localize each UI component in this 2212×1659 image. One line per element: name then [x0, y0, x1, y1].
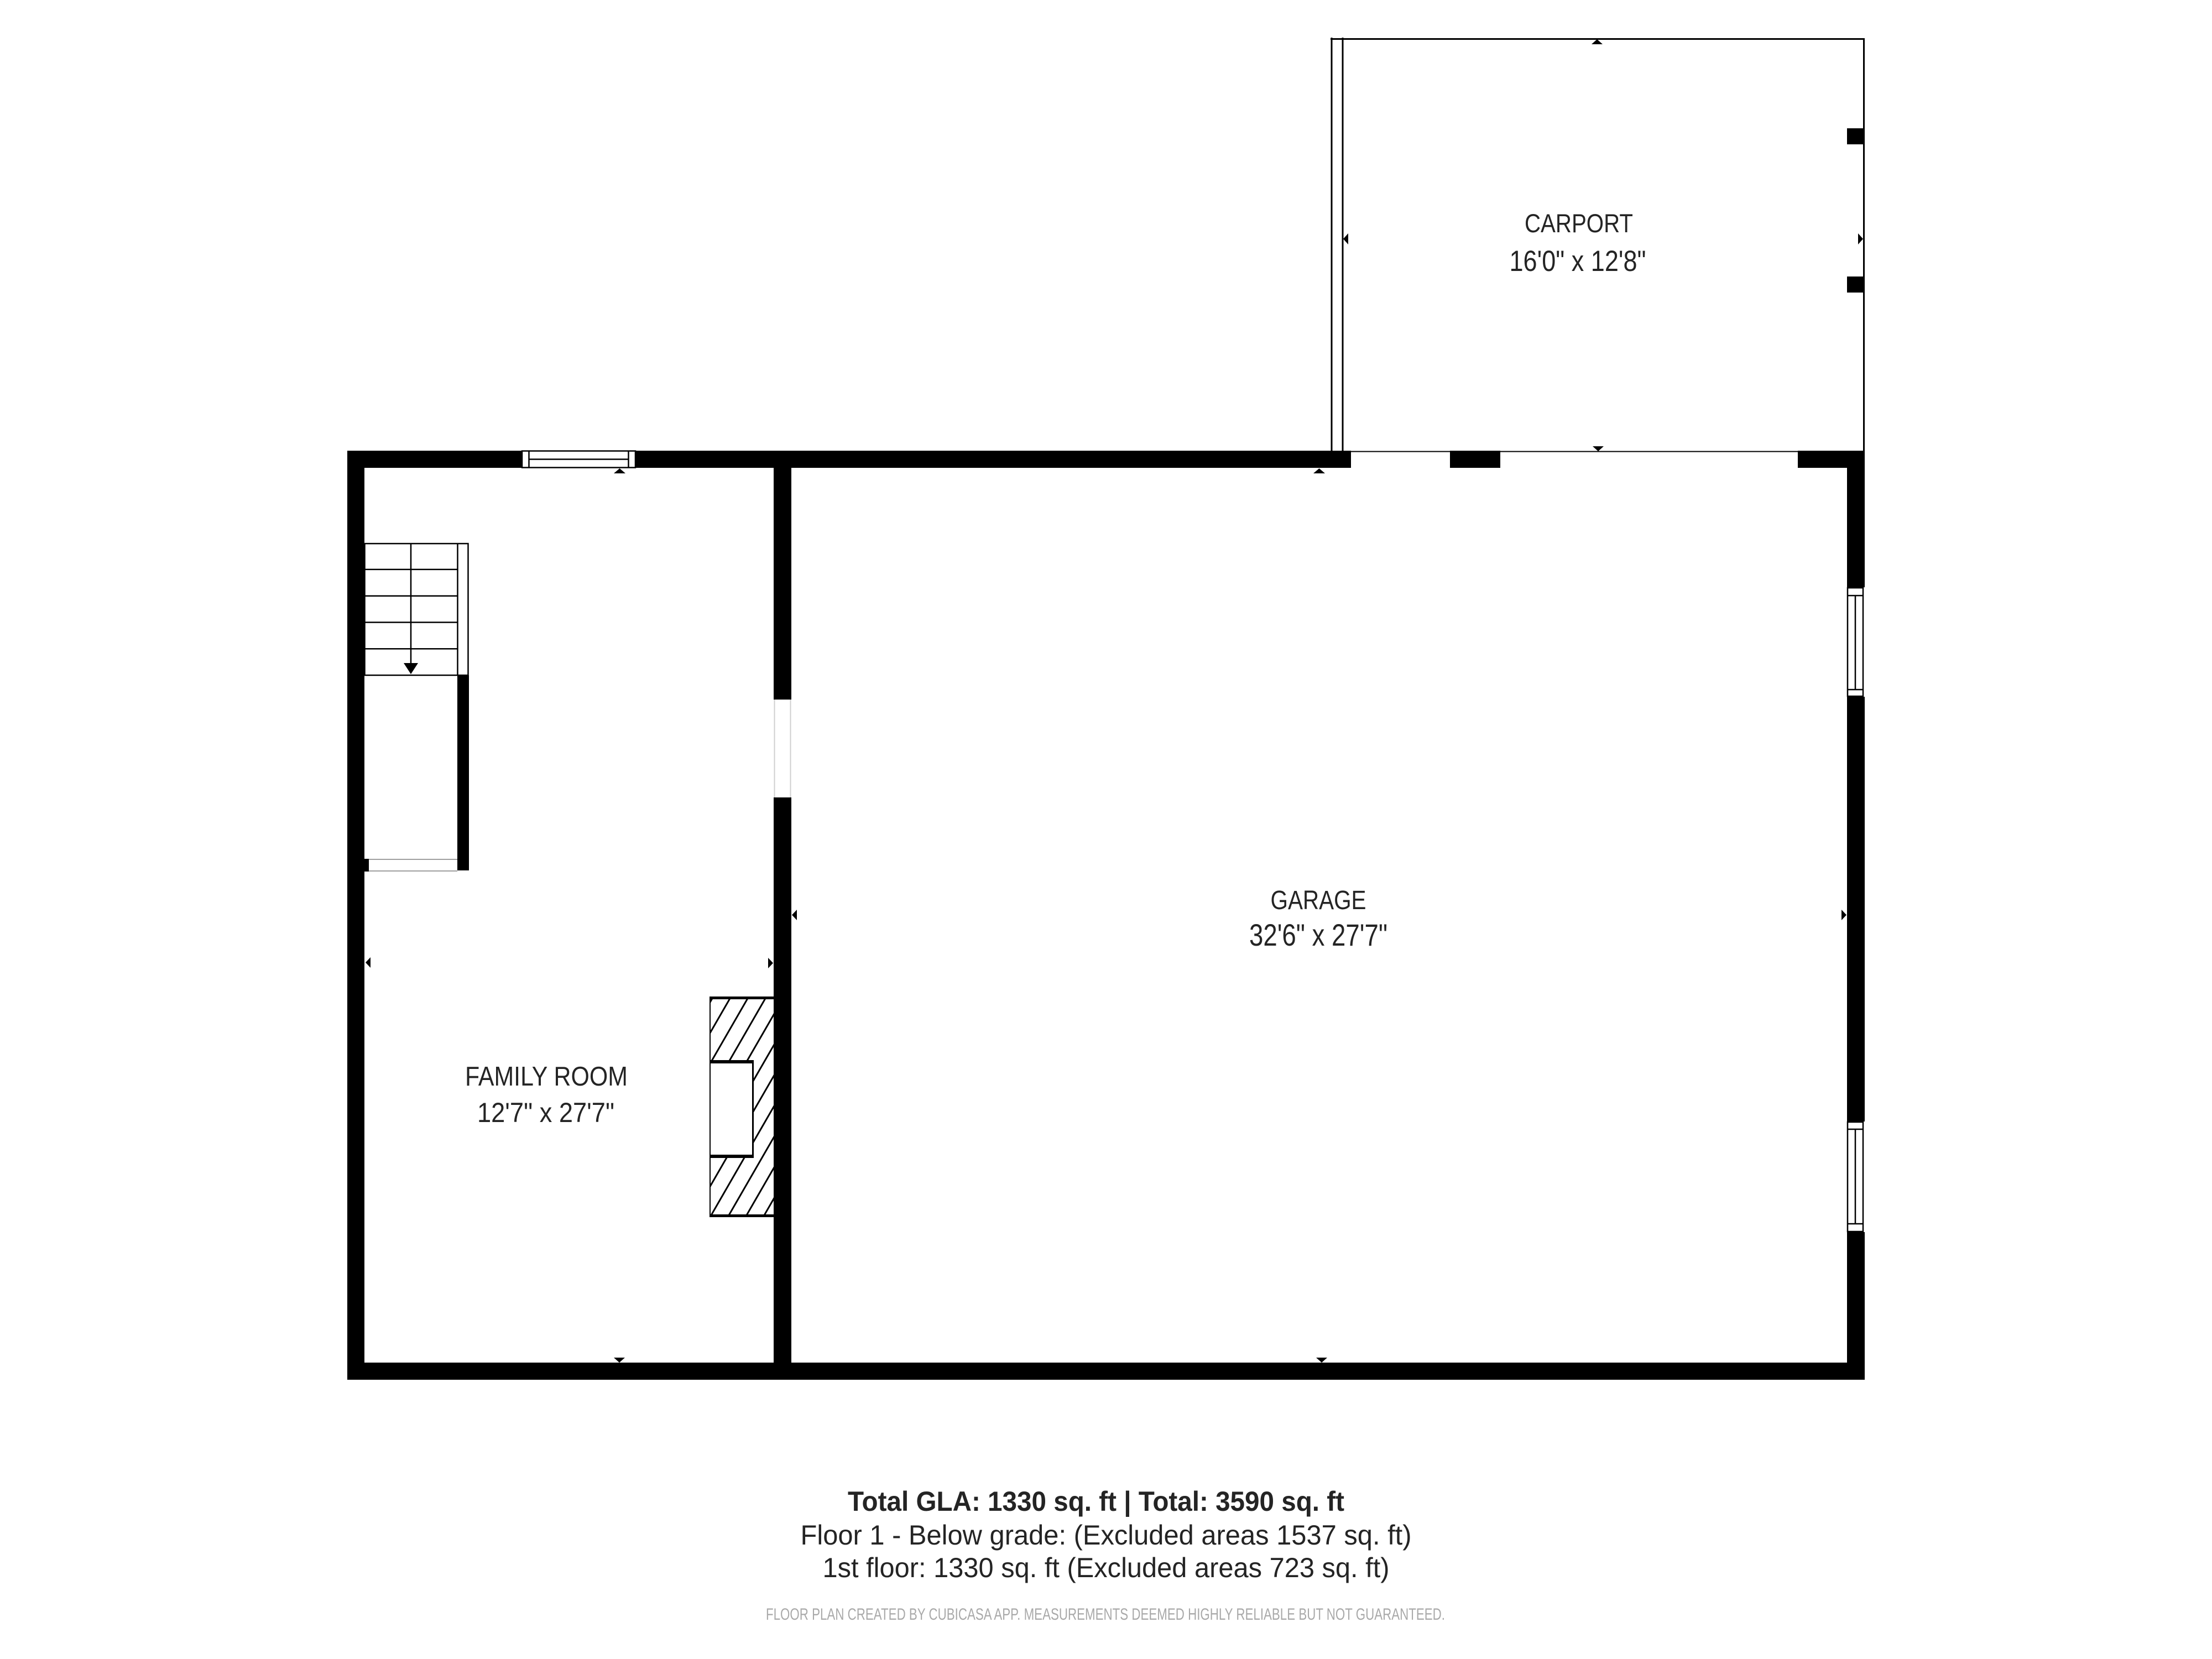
- svg-text:FAMILY ROOM: FAMILY ROOM: [465, 1062, 628, 1092]
- svg-text:FLOOR PLAN CREATED BY CUBICASA: FLOOR PLAN CREATED BY CUBICASA APP. MEAS…: [766, 1605, 1445, 1624]
- svg-text:Floor 1 - Below grade: (Exclud: Floor 1 - Below grade: (Excluded areas 1…: [801, 1520, 1412, 1551]
- svg-text:1st floor: 1330 sq. ft (Exclud: 1st floor: 1330 sq. ft (Excluded areas 7…: [823, 1552, 1390, 1583]
- svg-text:32'6" x 27'7": 32'6" x 27'7": [1249, 917, 1387, 952]
- svg-text:CARPORT: CARPORT: [1525, 208, 1633, 238]
- svg-text:12'7" x 27'7": 12'7" x 27'7": [477, 1097, 614, 1128]
- svg-text:Total GLA: 1330 sq. ft | Total: Total GLA: 1330 sq. ft | Total: 3590 sq.…: [848, 1486, 1344, 1517]
- svg-text:GARAGE: GARAGE: [1271, 886, 1366, 915]
- svg-text:16'0" x 12'8": 16'0" x 12'8": [1510, 245, 1646, 278]
